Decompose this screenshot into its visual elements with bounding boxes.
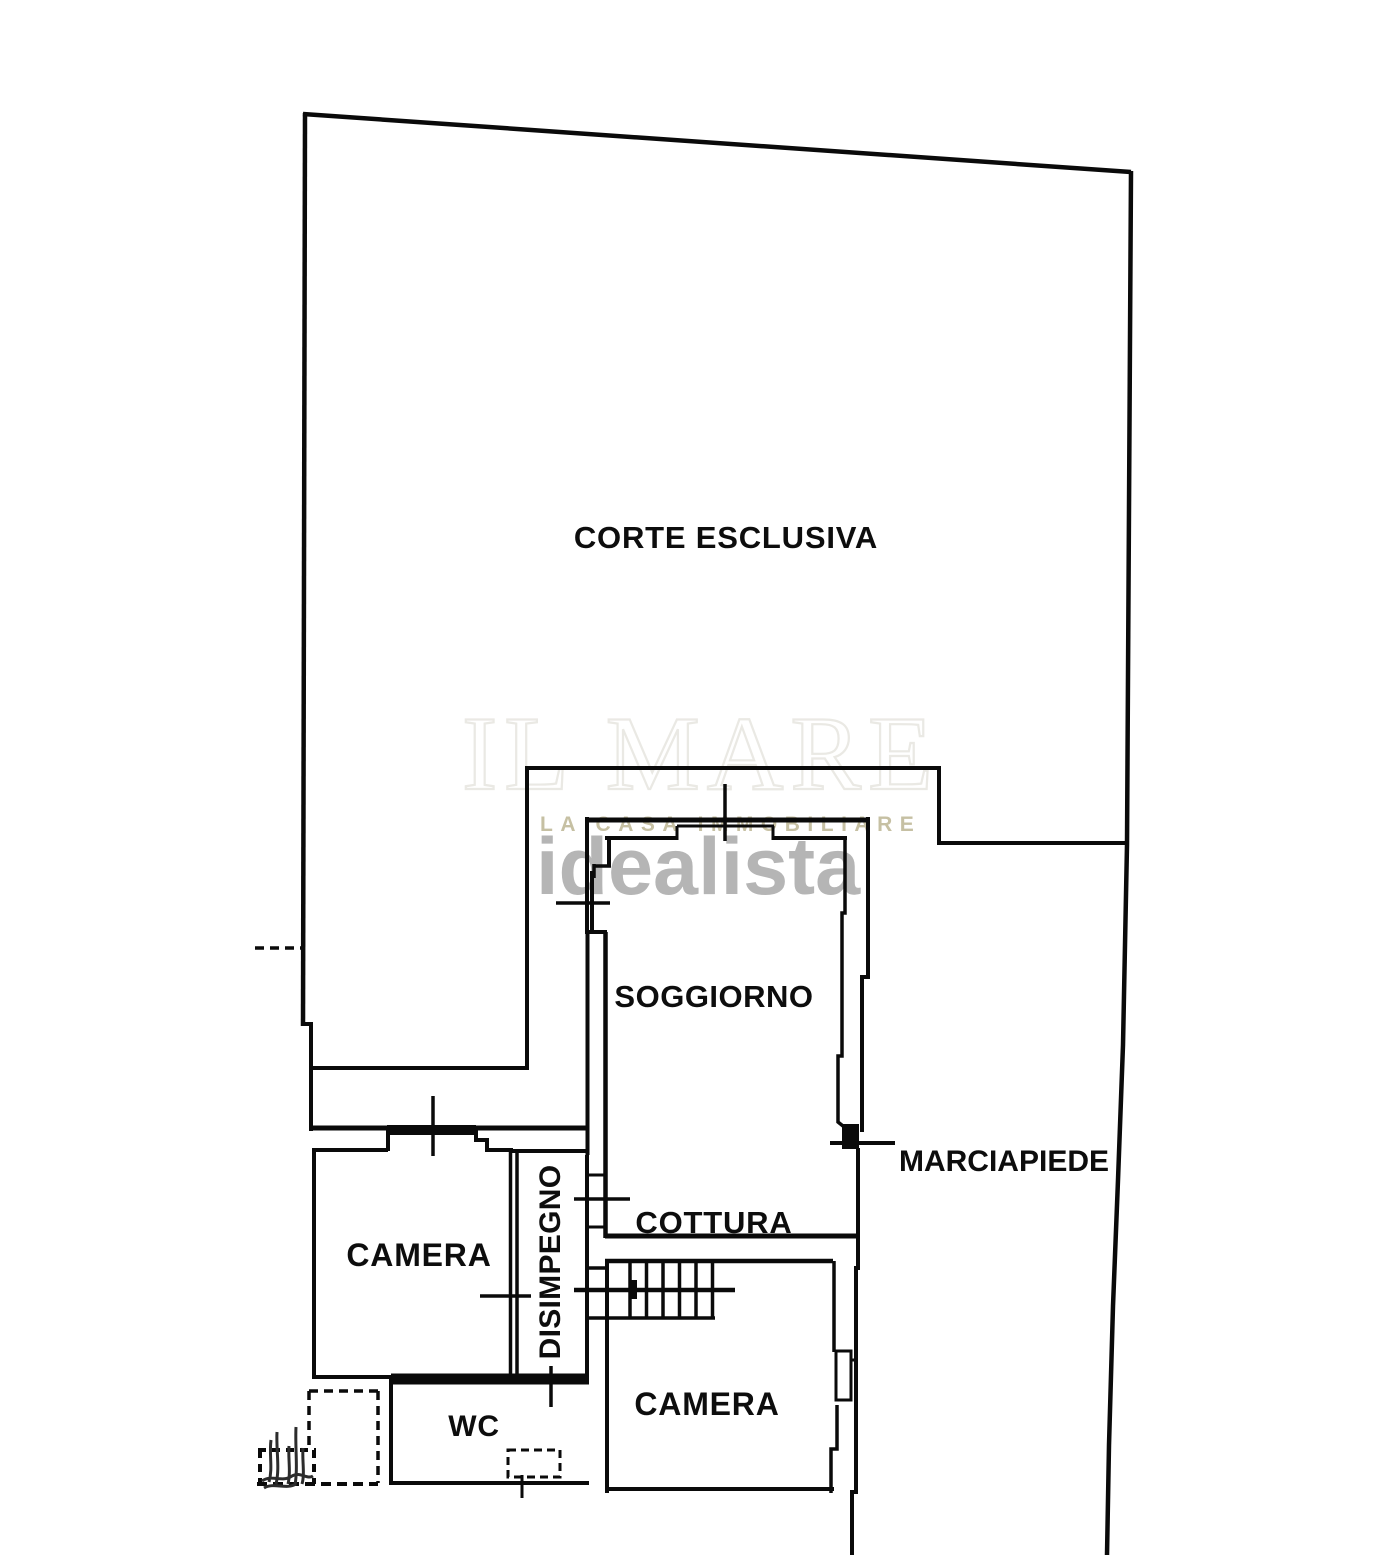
svg-text:MARCIAPIEDE: MARCIAPIEDE: [899, 1145, 1109, 1178]
svg-text:SOGGIORNO: SOGGIORNO: [614, 979, 813, 1014]
svg-text:CAMERA: CAMERA: [634, 1386, 779, 1422]
svg-text:CAMERA: CAMERA: [346, 1237, 491, 1273]
svg-text:idealista: idealista: [536, 822, 861, 912]
svg-text:DISIMPEGNO: DISIMPEGNO: [534, 1165, 567, 1360]
svg-text:WC: WC: [448, 1410, 500, 1443]
svg-text:COTTURA: COTTURA: [635, 1205, 792, 1240]
svg-text:IL MARE: IL MARE: [462, 695, 940, 812]
svg-text:CORTE ESCLUSIVA: CORTE ESCLUSIVA: [574, 520, 878, 555]
